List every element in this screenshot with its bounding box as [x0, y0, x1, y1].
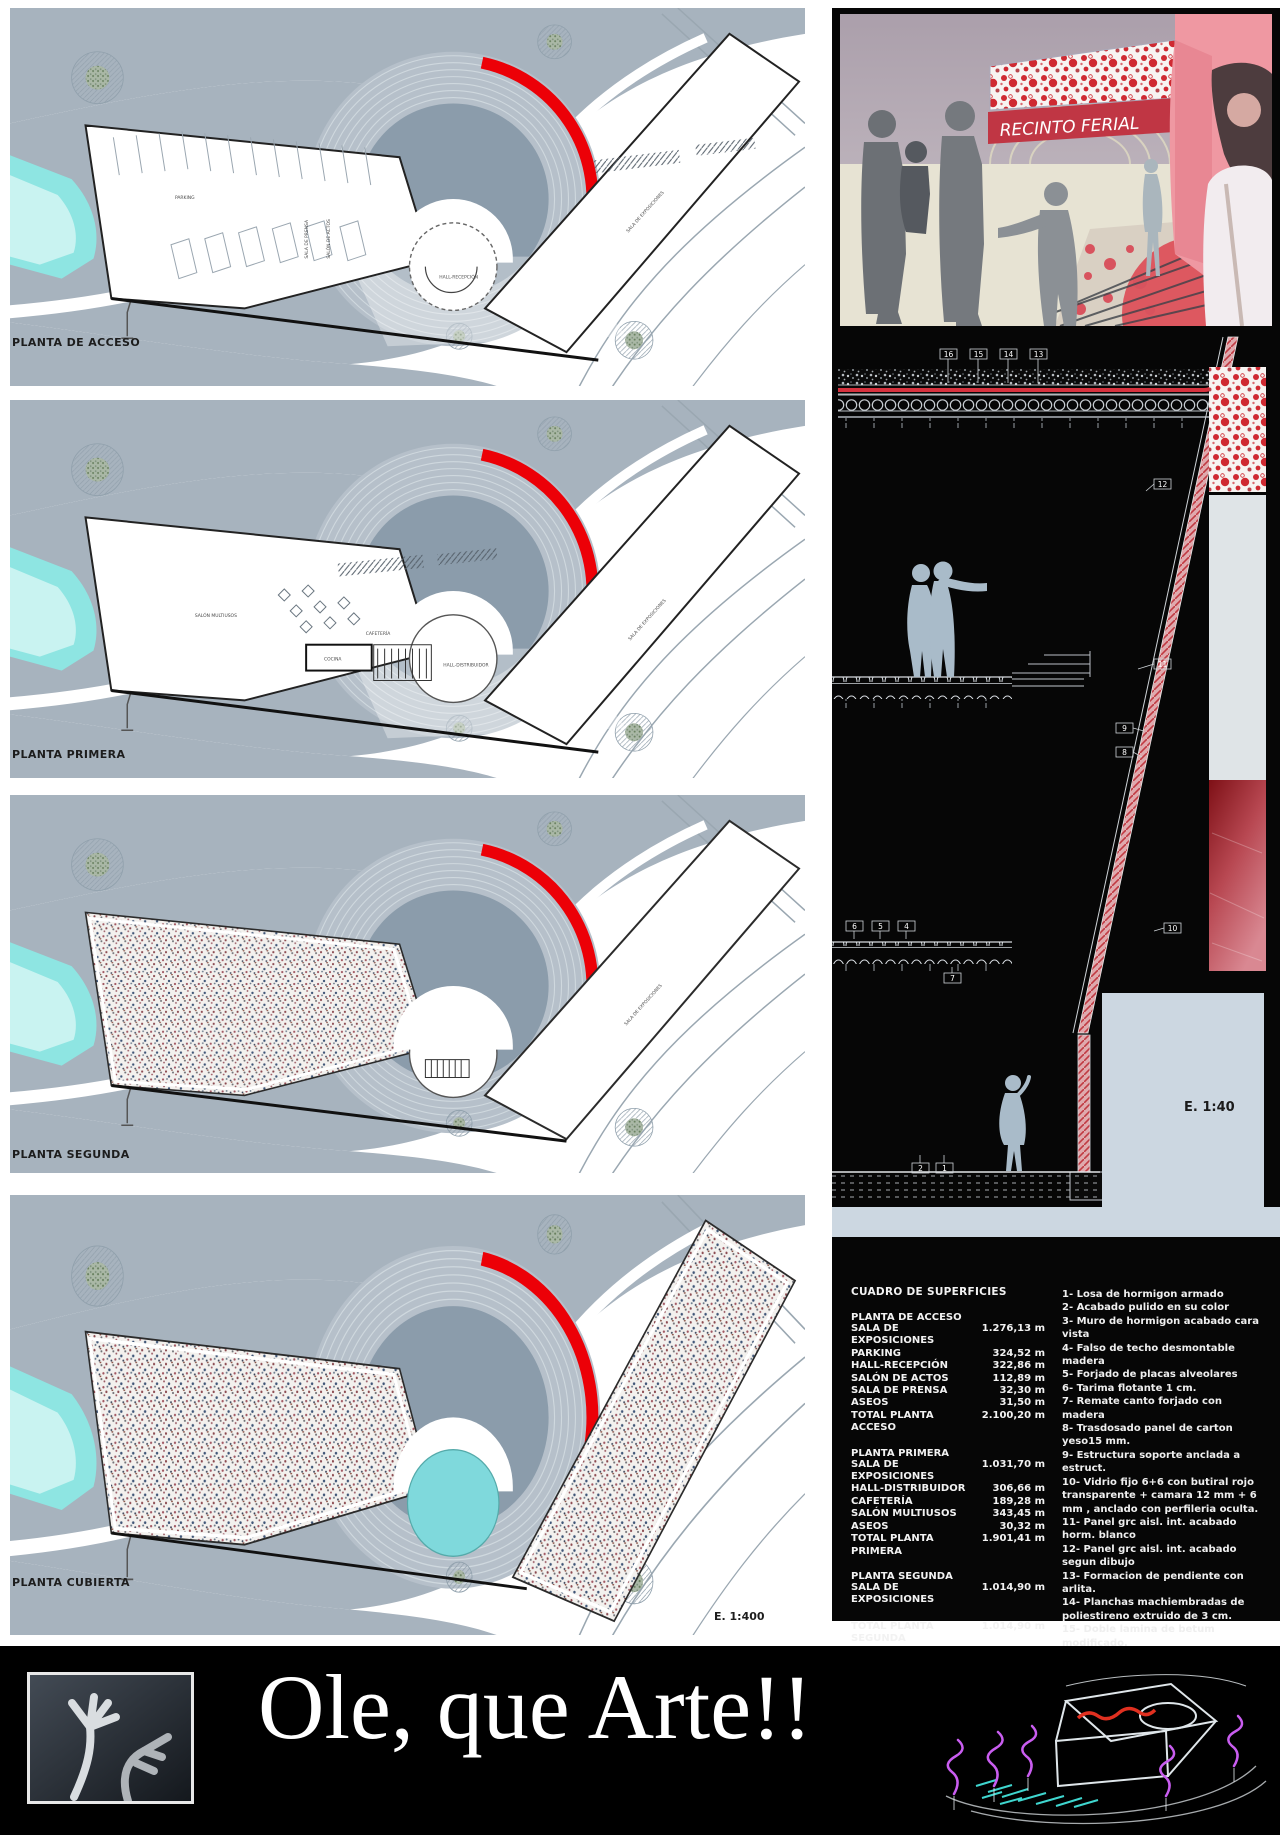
svg-text:8: 8 [1122, 748, 1127, 757]
plan-primera-label: PLANTA PRIMERA [12, 748, 125, 761]
room-label: PARKING [175, 195, 195, 201]
group-header: PLANTA DE ACCESO [851, 1312, 1051, 1323]
svg-text:16: 16 [944, 350, 954, 359]
table-row: CAFETERÍA189,28 m [851, 1496, 1051, 1508]
table-row: SALA DE EXPOSICIONES1.031,70 m [851, 1459, 1051, 1484]
note-item: 2- Acabado pulido en su color [1062, 1301, 1268, 1314]
section-scale-label: E. 1:40 [1184, 1100, 1235, 1115]
plan-primera-drawing: SALÓN MULTIUSOS COCINA CAFETERÍA HALL-DI… [10, 400, 805, 778]
plan-segunda-drawing: SALA DE EXPOSICIONES [10, 795, 805, 1173]
note-item: 12- Panel grc aisl. int. acabado segun d… [1062, 1543, 1268, 1570]
table-row: SALÓN MULTIUSOS343,45 m [851, 1508, 1051, 1520]
table-row-total: TOTAL PLANTA ACCESO2.100,20 m [851, 1410, 1051, 1435]
title-banner: Ole, que Arte!! [0, 1646, 1280, 1835]
svg-text:11: 11 [1158, 660, 1168, 669]
room-label: SALÓN DE ACTOS [325, 219, 332, 259]
group-header: PLANTA SEGUNDA [851, 1571, 1051, 1582]
plan-acceso-drawing: PARKING SALA DE PRENSA SALÓN DE ACTOS HA… [10, 8, 805, 386]
table-row: SALA DE EXPOSICIONES1.014,90 m [851, 1582, 1051, 1607]
note-item: 10- Vidrio fijo 6+6 con butiral rojo tra… [1062, 1476, 1268, 1516]
flamenco-hands-photo [27, 1672, 194, 1804]
note-item: 11- Panel grc aisl. int. acabado horm. b… [1062, 1516, 1268, 1543]
plan-cubierta-label: PLANTA CUBIERTA [12, 1576, 130, 1589]
note-item: 9- Estructura soporte anclada a estruct. [1062, 1449, 1268, 1476]
surfaces-table: CUADRO DE SUPERFICIES PLANTA DE ACCESO S… [851, 1286, 1051, 1672]
room-label: SALA DE PRENSA [304, 219, 310, 259]
table-row: HALL-DISTRIBUIDOR306,66 m [851, 1483, 1051, 1495]
table-row: ASEOS30,32 m [851, 1521, 1051, 1533]
hands-image [30, 1675, 191, 1801]
group-header: PLANTA PRIMERA [851, 1448, 1051, 1459]
plan-acceso-label: PLANTA DE ACCESO [12, 336, 140, 349]
svg-text:12: 12 [1158, 480, 1168, 489]
svg-text:6: 6 [852, 922, 857, 931]
table-row: ASEOS31,50 m [851, 1397, 1051, 1409]
note-item: 1- Losa de hormigon armado [1062, 1288, 1268, 1301]
note-item: 7- Remate canto forjado con madera [1062, 1395, 1268, 1422]
section-drawing: E. 1:40 16 15 14 13 12 11 9 8 6 5 [832, 333, 1280, 1237]
svg-text:2: 2 [918, 1164, 923, 1173]
note-item: 3- Muro de hormigon acabado cara vista [1062, 1315, 1268, 1342]
note-item: 6- Tarima flotante 1 cm. [1062, 1382, 1268, 1395]
table-row: PARKING324,52 m [851, 1348, 1051, 1360]
svg-text:10: 10 [1168, 924, 1178, 933]
svg-text:15: 15 [974, 350, 984, 359]
concept-sketch [916, 1646, 1280, 1835]
material-samples [1209, 367, 1266, 971]
table-row: SALA DE EXPOSICIONES1.276,13 m [851, 1323, 1051, 1348]
plan-cubierta-drawing [10, 1195, 805, 1635]
presentation-board: PARKING SALA DE PRENSA SALÓN DE ACTOS HA… [0, 0, 1280, 1835]
note-item: 8- Trasdosado panel de carton yeso15 mm. [1062, 1422, 1268, 1449]
svg-text:1: 1 [942, 1164, 947, 1173]
table-row-total: TOTAL PLANTA SEGUNDA1.014,90 m [851, 1621, 1051, 1646]
room-label: HALL-DISTRIBUIDOR [443, 663, 488, 669]
table-row: SALA DE PRENSA32,30 m [851, 1385, 1051, 1397]
surfaces-title: CUADRO DE SUPERFICIES [851, 1286, 1051, 1298]
note-item: 14- Planchas machiembradas de poliestire… [1062, 1596, 1268, 1623]
note-item: 4- Falso de techo desmontable madera [1062, 1342, 1268, 1369]
plan-segunda-label: PLANTA SEGUNDA [12, 1148, 130, 1161]
table-row: HALL-RECEPCIÓN322,86 m [851, 1360, 1051, 1372]
render-image: RECINTO FERIAL [840, 14, 1272, 326]
svg-text:7: 7 [950, 974, 955, 983]
table-row-total: TOTAL PLANTA PRIMERA1.901,41 m [851, 1533, 1051, 1558]
note-item: 5- Forjado de placas alveolares [1062, 1368, 1268, 1381]
svg-text:13: 13 [1034, 350, 1044, 359]
note-item: 13- Formacion de pendiente con arlita. [1062, 1570, 1268, 1597]
plans-scale-label: E. 1:400 [714, 1610, 765, 1623]
room-label: CAFETERÍA [366, 630, 392, 637]
room-label: COCINA [324, 657, 342, 663]
project-title: Ole, que Arte!! [258, 1654, 812, 1760]
construction-notes: 1- Losa de hormigon armado 2- Acabado pu… [1062, 1288, 1268, 1663]
room-label: SALÓN MULTIUSOS [195, 612, 237, 619]
svg-text:14: 14 [1004, 350, 1014, 359]
svg-text:5: 5 [878, 922, 883, 931]
table-row: SALÓN DE ACTOS112,89 m [851, 1373, 1051, 1385]
room-label: HALL-RECEPCIÓN [439, 274, 478, 281]
svg-text:4: 4 [904, 922, 909, 931]
svg-text:9: 9 [1122, 724, 1127, 733]
foreground-woman [1203, 63, 1272, 326]
